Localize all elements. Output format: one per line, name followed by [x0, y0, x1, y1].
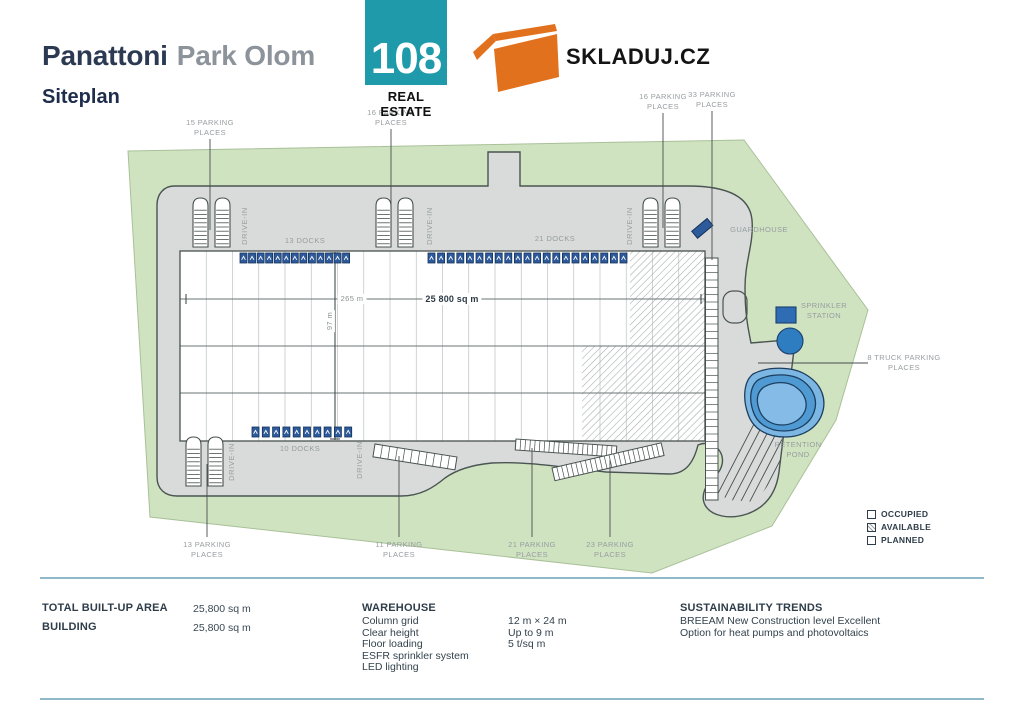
park-location: Park Olom [177, 40, 315, 71]
page-title: PanattoniPark Olom [42, 40, 315, 72]
page-subtitle: Siteplan [42, 86, 120, 109]
planned-swatch-icon [867, 536, 876, 545]
parking-strip-33 [706, 258, 719, 500]
sprinkler-station-building [776, 307, 796, 323]
occupied-swatch-icon [867, 510, 876, 519]
total-built-up-area-value: 25,800 sq m [193, 603, 251, 615]
logo-108-caption: REAL ESTATE [361, 89, 451, 119]
warehouse-section-title: WAREHOUSE [362, 602, 436, 614]
available-swatch-icon [867, 523, 876, 532]
sustainability-line-2: Option for heat pumps and photovoltaics [680, 627, 869, 639]
divider-line-bottom [40, 698, 984, 700]
divider-line-top [40, 577, 984, 579]
legend-item-available: AVAILABLE [867, 522, 931, 532]
building-value: 25,800 sq m [193, 622, 251, 634]
logo-108: 108 [365, 0, 447, 85]
sprinkler-tank [777, 328, 803, 354]
retention-pond [745, 368, 824, 437]
skladuj-logo-text: SKLADUJ.CZ [566, 44, 710, 70]
legend: OCCUPIED AVAILABLE PLANNED [867, 509, 931, 548]
sustainability-section-title: SUSTAINABILITY TRENDS [680, 602, 823, 614]
total-built-up-area-label: TOTAL BUILT-UP AREA [42, 602, 168, 614]
logo-108-number: 108 [371, 37, 441, 85]
legend-item-occupied: OCCUPIED [867, 509, 931, 519]
park-name: Panattoni [42, 40, 168, 71]
sustainability-line-1: BREEAM New Construction level Excellent [680, 615, 880, 627]
spec-row-led: LED lighting [362, 662, 567, 674]
siteplan-page: PanattoniPark Olom Siteplan 108 REAL EST… [0, 0, 1024, 714]
open-box-icon [468, 22, 563, 97]
building-label: BUILDING [42, 621, 97, 633]
legend-item-planned: PLANNED [867, 535, 931, 545]
warehouse-spec-list: Column grid12 m × 24 m Clear heightUp to… [362, 616, 567, 674]
